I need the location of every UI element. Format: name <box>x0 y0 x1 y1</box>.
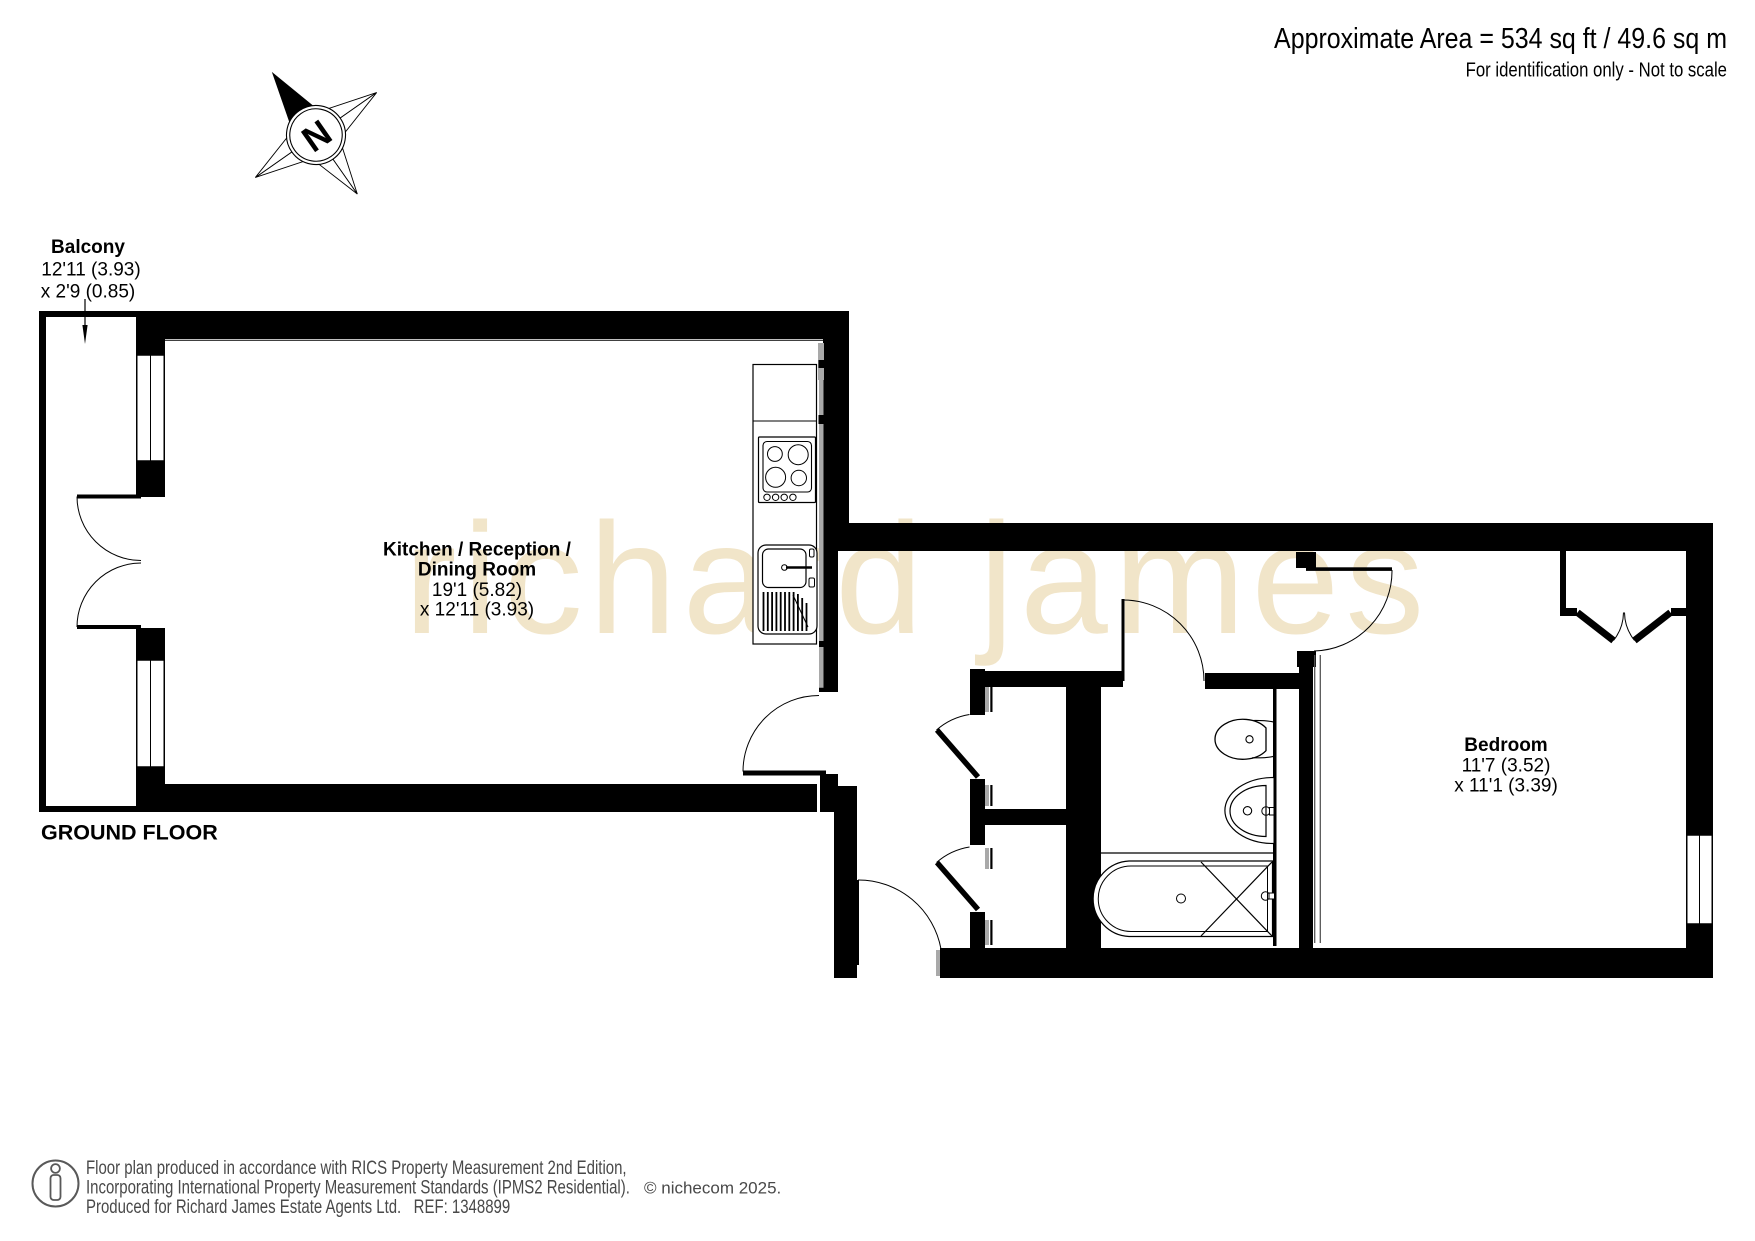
svg-text:Kitchen / Reception /: Kitchen / Reception / <box>383 540 572 561</box>
svg-text:x 12'11 (3.93): x 12'11 (3.93) <box>420 600 534 621</box>
svg-text:Bedroom: Bedroom <box>1464 735 1547 756</box>
svg-text:11'7 (3.52): 11'7 (3.52) <box>1462 756 1551 777</box>
svg-text:Dining Room: Dining Room <box>418 560 536 581</box>
svg-text:x 2'9 (0.85): x 2'9 (0.85) <box>41 282 135 303</box>
svg-text:Floor plan produced in accorda: Floor plan produced in accordance with R… <box>86 1157 627 1178</box>
svg-text:GROUND FLOOR: GROUND FLOOR <box>41 821 218 845</box>
svg-text:richard james: richard james <box>404 491 1430 667</box>
svg-text:For identification only - Not: For identification only - Not to scale <box>1466 58 1727 81</box>
svg-text:Approximate Area = 534 sq ft /: Approximate Area = 534 sq ft / 49.6 sq m <box>1274 22 1727 54</box>
svg-text:Balcony: Balcony <box>51 237 125 258</box>
svg-text:x 11'1 (3.39): x 11'1 (3.39) <box>1454 776 1558 797</box>
svg-text:© nichecom 2025.: © nichecom 2025. <box>644 1179 781 1198</box>
svg-text:Incorporating International Pr: Incorporating International Property Mea… <box>86 1177 630 1198</box>
svg-text:Produced for Richard James Est: Produced for Richard James Estate Agents… <box>86 1196 510 1217</box>
svg-text:19'1 (5.82): 19'1 (5.82) <box>432 580 522 601</box>
svg-text:12'11 (3.93): 12'11 (3.93) <box>41 260 140 281</box>
